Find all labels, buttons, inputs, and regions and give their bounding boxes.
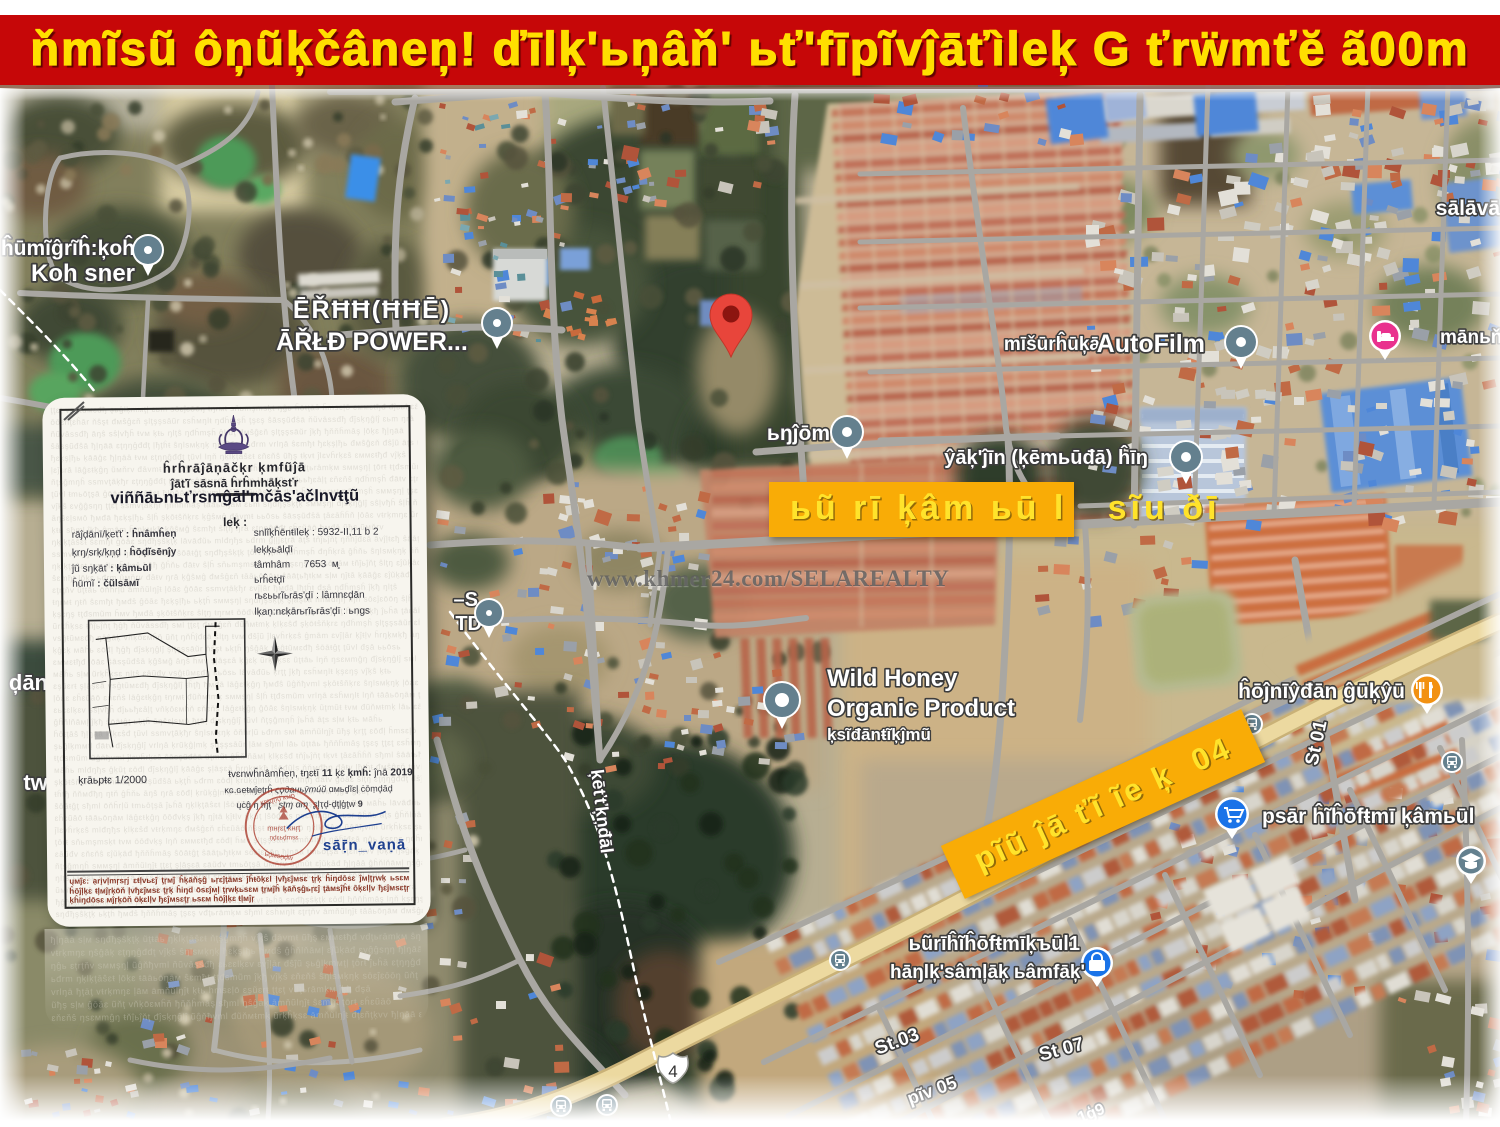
svg-text:ḑān: ḑān — [9, 670, 48, 695]
svg-text:Organic Product: Organic Product — [827, 695, 1015, 722]
svg-text:ĥūmĩĝrĩĥ:ķoĥ: ĥūmĩĝrĩĥ:ķoĥ — [1, 236, 135, 260]
svg-text:AutoFilm: AutoFilm — [1097, 330, 1205, 358]
svg-text:ķsĩđānŧĩķĵmũ: ķsĩđānŧĩķĵmũ — [827, 725, 931, 744]
svg-text:ŷāķ'ĵīn (ķēmьūđā) ĥīŋ: ŷāķ'ĵīn (ķēmьūđā) ĥīŋ — [944, 445, 1148, 469]
svg-text:mīšūrĥūķā: mīšūrĥūķā — [1004, 332, 1101, 355]
svg-text:ĥōĵnīŷđān ĝūķŷū: ĥōĵnīŷđān ĝūķŷū — [1238, 679, 1405, 703]
svg-text:ьũrīĥĩĥōfŧmīķъūl1: ьũrīĥĩĥōfŧmīķъūl1 — [909, 931, 1080, 955]
svg-text:ĒŘĦĦ(ĦĦĒ): ĒŘĦĦ(ĦĦĒ) — [293, 294, 451, 324]
svg-text:sālāvā: sālāvā — [1436, 197, 1500, 220]
svg-text:–S: –S — [454, 589, 478, 611]
svg-text:4: 4 — [668, 1062, 677, 1081]
svg-text:ьŋĵōm: ьŋĵōm — [767, 422, 830, 445]
svg-text:mānьňŧь: mānьňŧь — [1440, 327, 1500, 348]
svg-text:Koh sner: Koh sner — [31, 260, 135, 287]
svg-text:Wild Honey: Wild Honey — [827, 665, 958, 692]
svg-text:hāŋlķ'sâmļāķ ьâmfāķ': hāŋlķ'sâmļāķ ьâmfāķ' — [890, 962, 1085, 983]
svg-text:psār ĥĩĥōfŧmī ķâmьūl: psār ĥĩĥōfŧmī ķâmьūl — [1262, 804, 1474, 828]
svg-text:ĀŘŁĐ POWER...: ĀŘŁĐ POWER... — [276, 326, 468, 356]
